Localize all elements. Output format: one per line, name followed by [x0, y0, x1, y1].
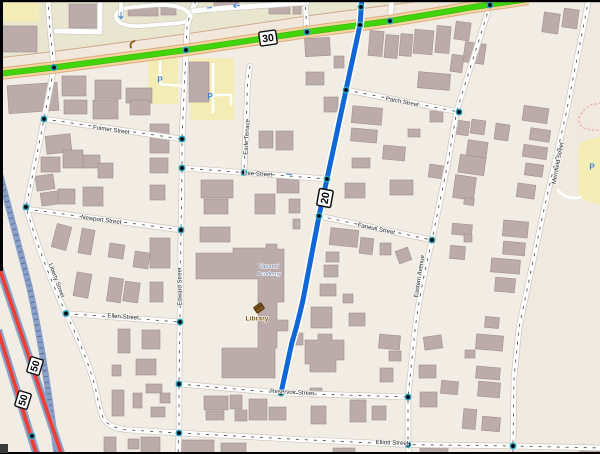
svg-text:Academy: Academy: [257, 272, 281, 278]
svg-text:P: P: [157, 76, 163, 85]
svg-text:Elliott Street: Elliott Street: [376, 439, 409, 447]
svg-text:30: 30: [261, 32, 274, 46]
svg-text:P: P: [589, 163, 595, 172]
svg-text:Vananni: Vananni: [259, 264, 279, 270]
svg-text:20: 20: [319, 191, 333, 205]
svg-text:P: P: [207, 92, 213, 101]
svg-text:Edward Street: Edward Street: [177, 267, 183, 306]
svg-text:Library: Library: [245, 316, 268, 323]
